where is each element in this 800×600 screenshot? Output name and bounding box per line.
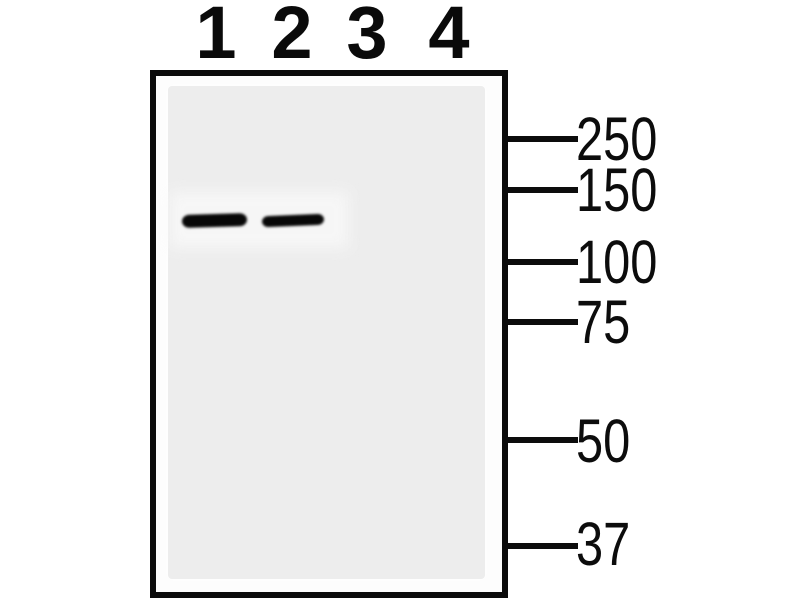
- mw-label-150: 150: [576, 159, 657, 221]
- mw-label-50: 50: [576, 410, 630, 472]
- mw-tick-250: [506, 136, 578, 142]
- lane-label-3: 3: [321, 0, 411, 68]
- protein-band-lane-1: [182, 213, 247, 228]
- mw-tick-37: [506, 543, 578, 549]
- mw-tick-150: [506, 187, 578, 193]
- blot-membrane-frame: [150, 70, 508, 598]
- blot-membrane-surface: [168, 86, 485, 579]
- mw-label-75: 75: [576, 291, 630, 353]
- lane-label-4: 4: [403, 0, 493, 68]
- mw-tick-100: [506, 259, 578, 265]
- mw-tick-75: [506, 319, 578, 325]
- mw-label-100: 100: [576, 231, 657, 293]
- mw-tick-50: [506, 437, 578, 443]
- mw-label-37: 37: [576, 513, 630, 575]
- western-blot-figure: 1 2 3 4 250 150 100 75 50 37: [0, 0, 800, 600]
